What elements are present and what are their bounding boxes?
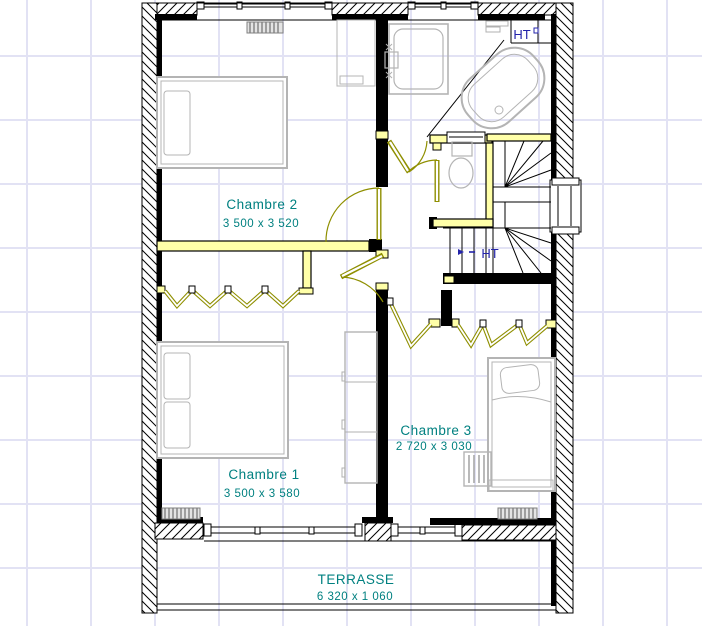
bed-chambre3 <box>488 358 555 491</box>
chambre2-label: Chambre 2 <box>226 197 297 212</box>
floor-plan-canvas: Chambre 2 3 500 x 3 520 Chambre 1 3 500 … <box>0 0 702 626</box>
wardrobe-chambre2 <box>337 20 375 86</box>
stair-window <box>550 178 581 234</box>
door-bathroom <box>389 141 427 172</box>
chambre2-dims: 3 500 x 3 520 <box>223 218 299 230</box>
sink-vanity <box>385 24 448 94</box>
bed-chambre2 <box>157 77 287 168</box>
folding-door-chambre3-entry <box>387 298 431 346</box>
chambre1-dims: 3 500 x 3 580 <box>224 488 300 500</box>
bed-chambre1 <box>157 342 288 458</box>
door-chambre2 <box>326 188 379 242</box>
ht-upper-symbol-icon <box>534 28 538 33</box>
floor-plan-drawing: Chambre 2 3 500 x 3 520 Chambre 1 3 500 … <box>0 0 702 626</box>
radiator-chambre2 <box>247 22 283 33</box>
radiator-chambre3 <box>464 452 491 486</box>
folding-doors-closet-chambre1 <box>165 286 299 306</box>
terrasse-label: TERRASSE <box>318 572 395 587</box>
radiator-chambre3-south <box>498 508 537 519</box>
chambre3-label: Chambre 3 <box>400 423 471 438</box>
toilet <box>449 142 473 188</box>
background-grid <box>0 0 702 626</box>
ht-stairs-symbol-icon <box>458 249 475 255</box>
chambre1-label: Chambre 1 <box>228 467 299 482</box>
terrasse-dims: 6 320 x 1 060 <box>317 591 393 603</box>
ht-annotation-stairs: HT <box>481 246 498 261</box>
ht-annotation-upper: HT <box>513 27 530 42</box>
folding-doors-closet-chambre3 <box>458 320 547 345</box>
bottom-windows <box>204 524 462 536</box>
radiator-chambre1 <box>162 508 200 519</box>
chambre3-dims: 2 720 x 3 030 <box>396 441 472 453</box>
